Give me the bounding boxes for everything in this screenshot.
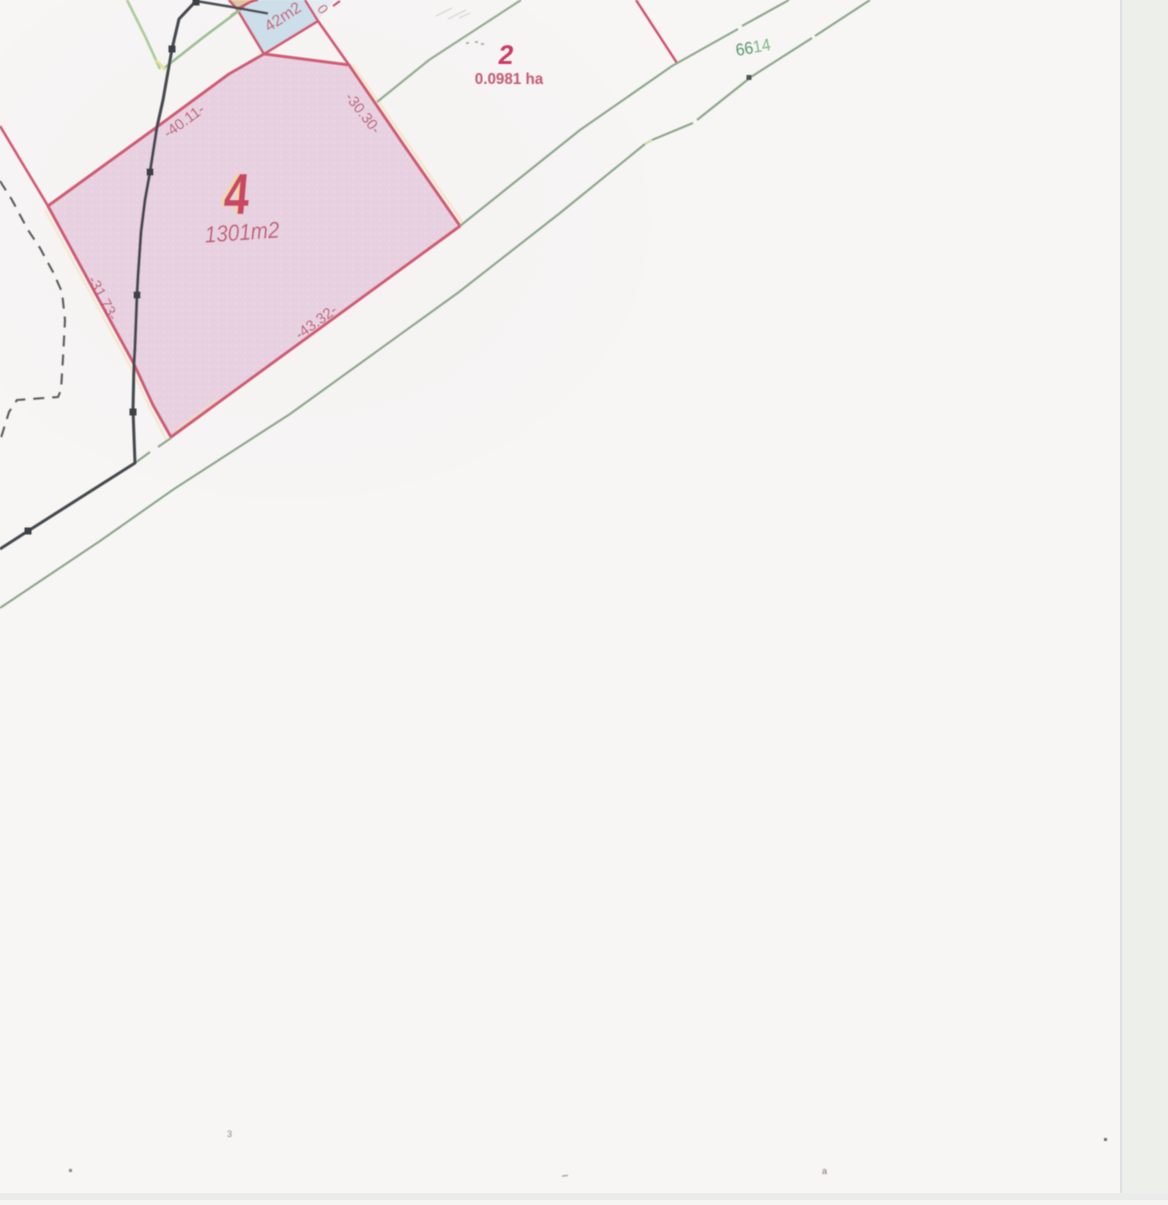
svg-text:1301m2: 1301m2 — [204, 216, 280, 247]
svg-text:a: a — [822, 1166, 827, 1176]
svg-text:0.0981 ha: 0.0981 ha — [475, 71, 544, 88]
svg-text:3: 3 — [227, 1129, 232, 1139]
